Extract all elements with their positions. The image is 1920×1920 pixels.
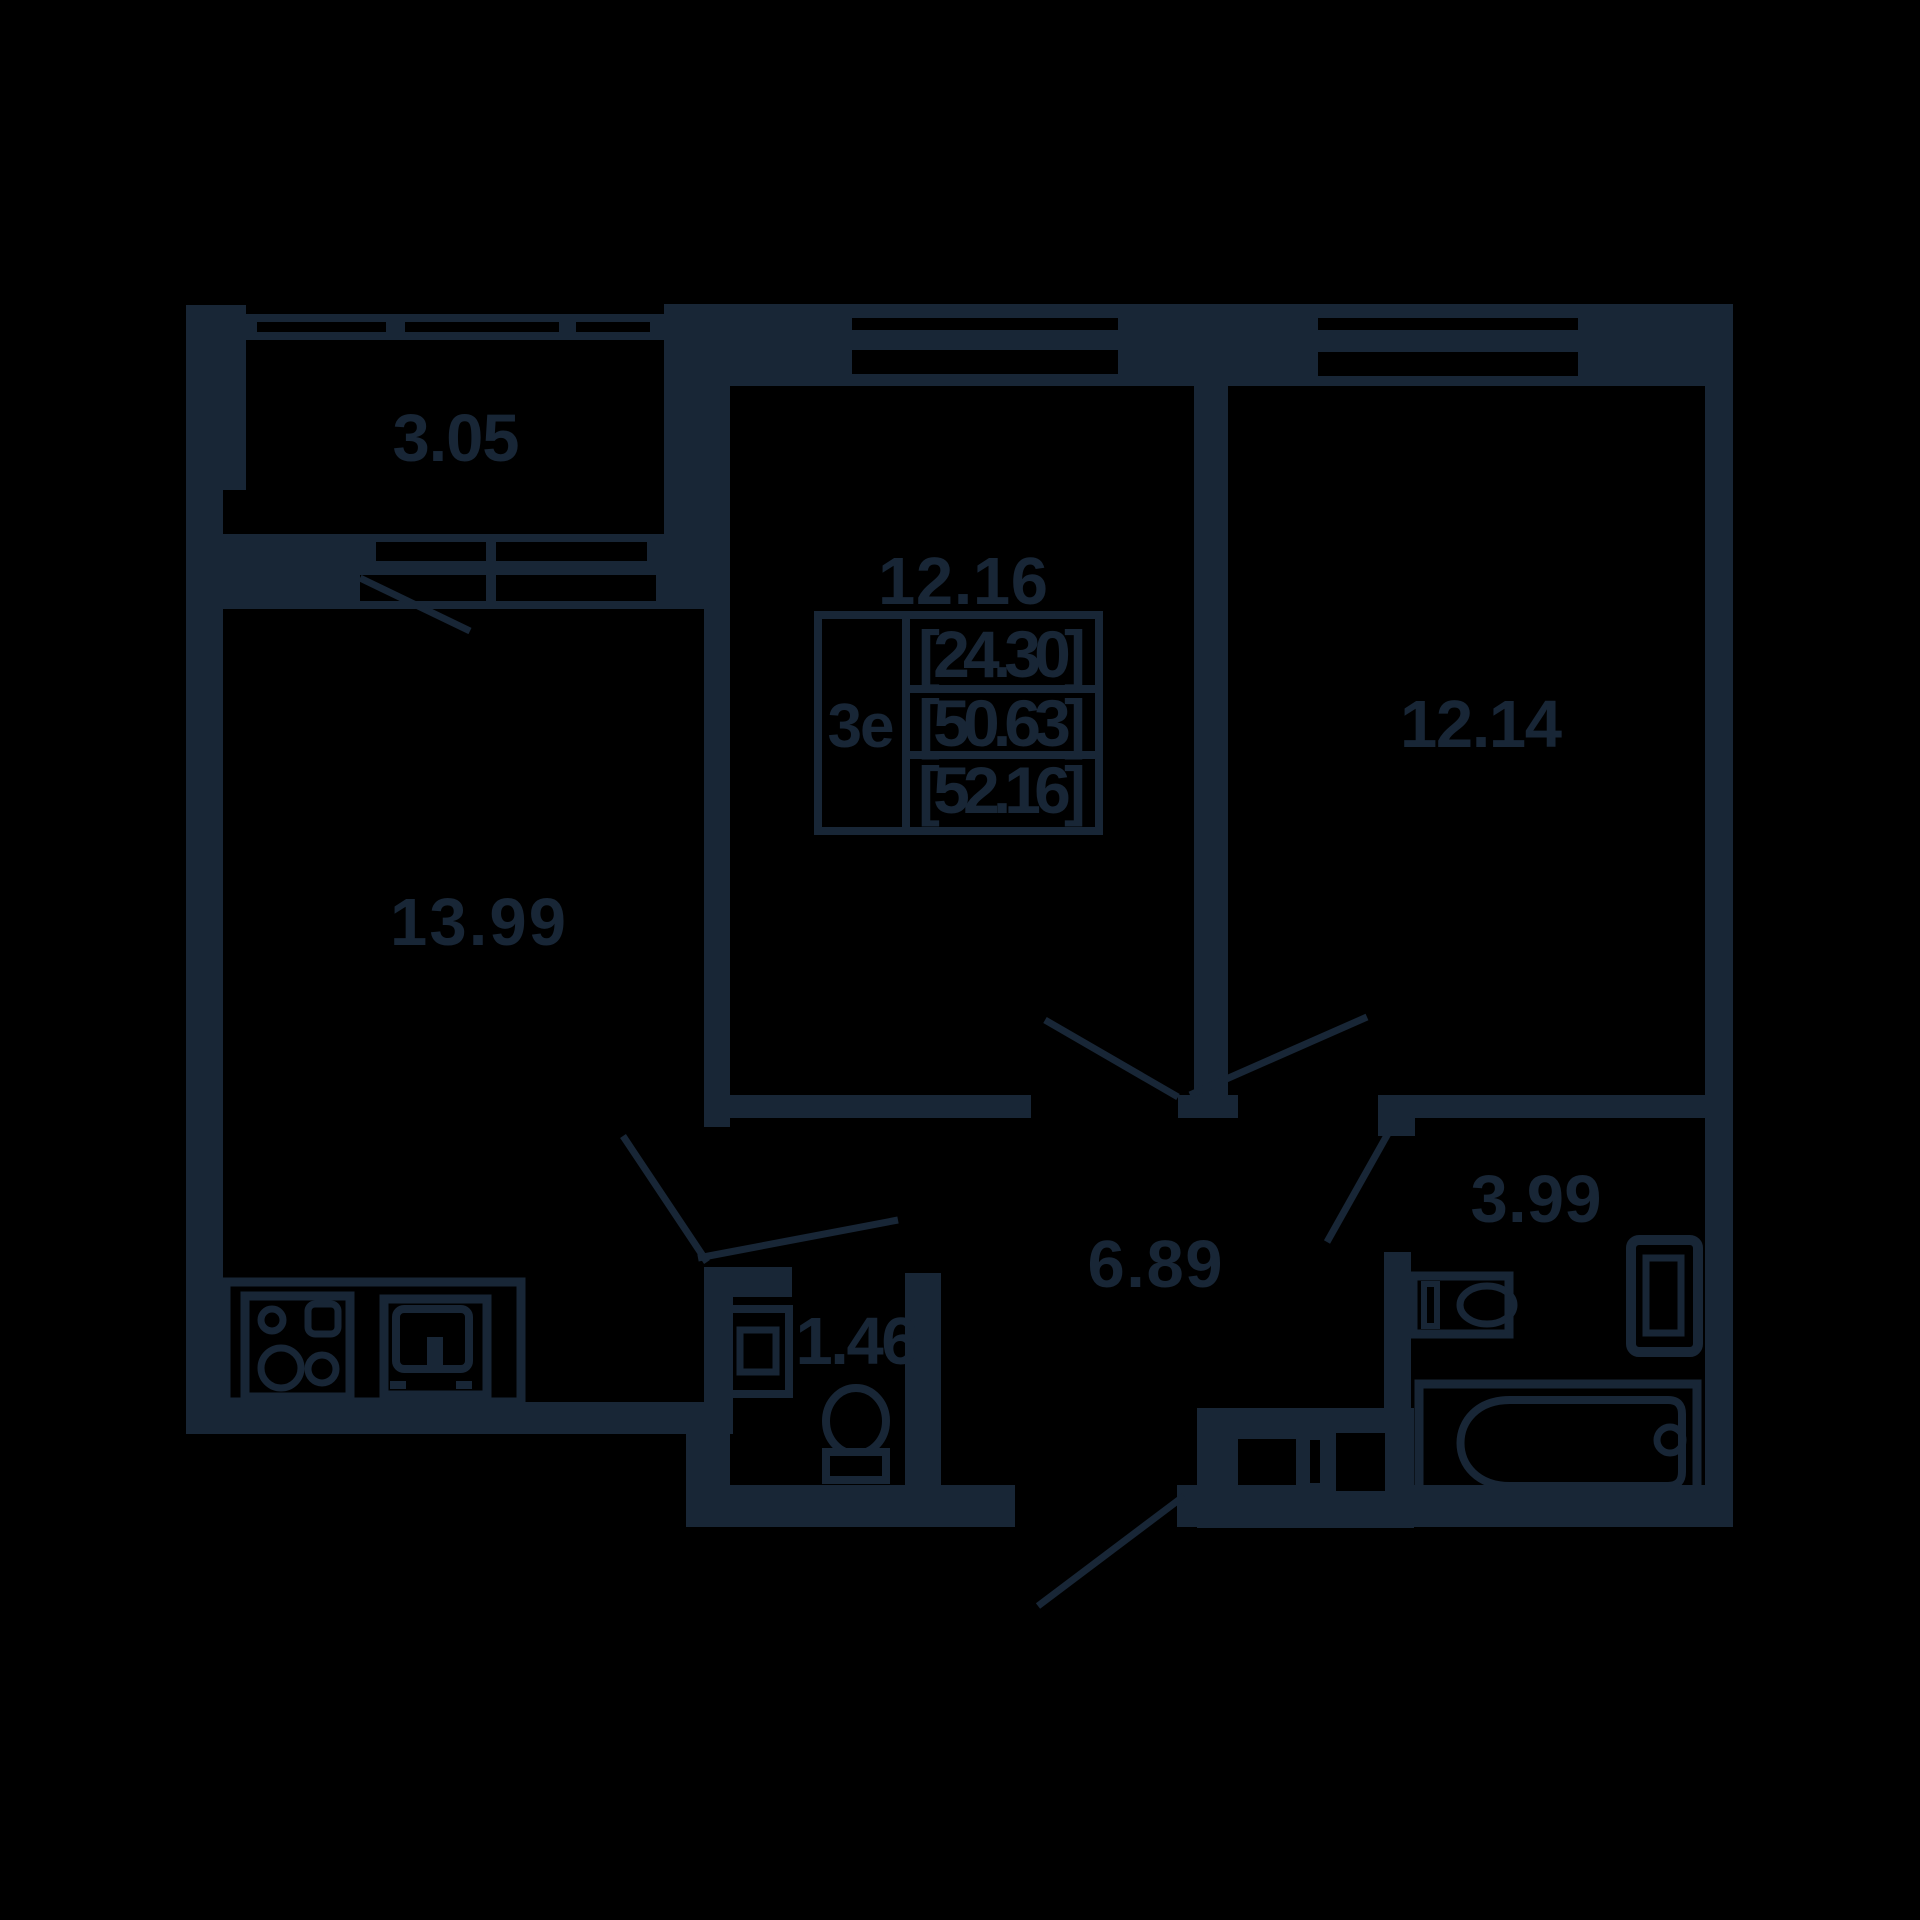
svg-text:3.99: 3.99 xyxy=(1471,1162,1602,1237)
svg-text:13.99: 13.99 xyxy=(390,885,566,960)
svg-text:[50.63]: [50.63] xyxy=(918,686,1086,760)
svg-text:[52.16]: [52.16] xyxy=(918,753,1086,827)
svg-text:3.05: 3.05 xyxy=(393,401,520,476)
svg-text:[24.30]: [24.30] xyxy=(918,617,1086,691)
svg-text:12.16: 12.16 xyxy=(878,544,1048,619)
svg-text:12.14: 12.14 xyxy=(1400,687,1562,762)
svg-text:3е: 3е xyxy=(828,692,895,761)
svg-text:1.46: 1.46 xyxy=(796,1304,919,1379)
svg-text:6.89: 6.89 xyxy=(1088,1227,1223,1302)
